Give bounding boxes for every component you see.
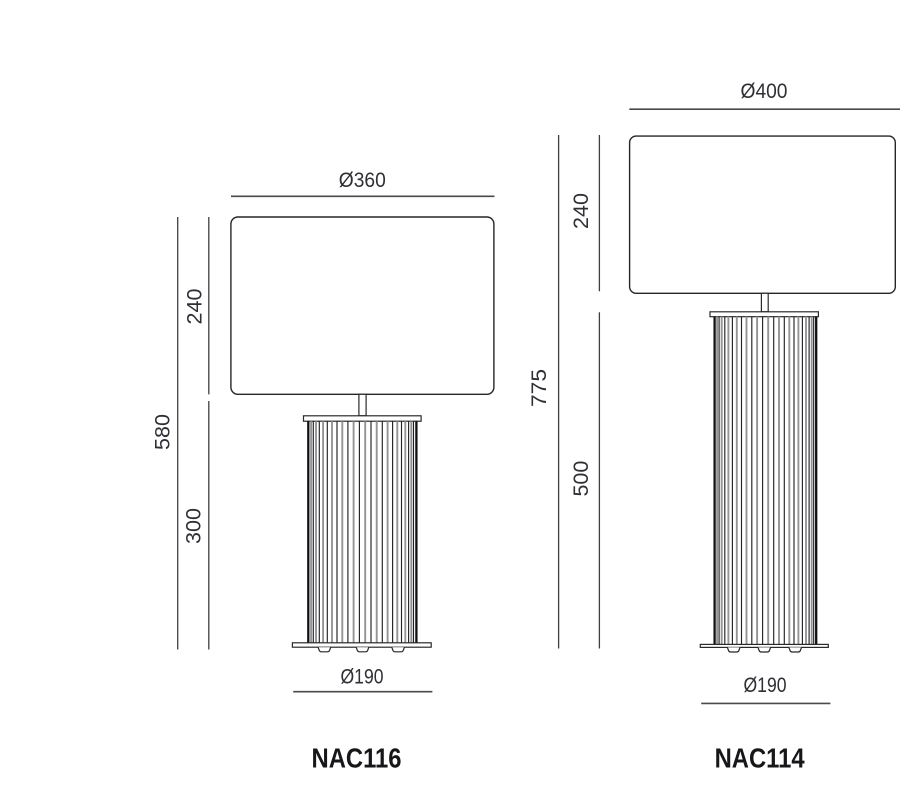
svg-text:240: 240 [183, 289, 207, 325]
svg-text:Ø190: Ø190 [744, 673, 787, 697]
svg-text:Ø190: Ø190 [341, 665, 384, 689]
svg-text:240: 240 [569, 193, 593, 229]
svg-text:500: 500 [569, 461, 593, 497]
svg-text:300: 300 [182, 508, 206, 544]
svg-text:Ø360: Ø360 [339, 168, 386, 192]
svg-text:775: 775 [527, 369, 551, 407]
svg-text:NAC114: NAC114 [715, 743, 805, 774]
svg-text:580: 580 [150, 414, 174, 450]
svg-text:Ø400: Ø400 [741, 79, 788, 103]
svg-text:NAC116: NAC116 [312, 743, 402, 774]
